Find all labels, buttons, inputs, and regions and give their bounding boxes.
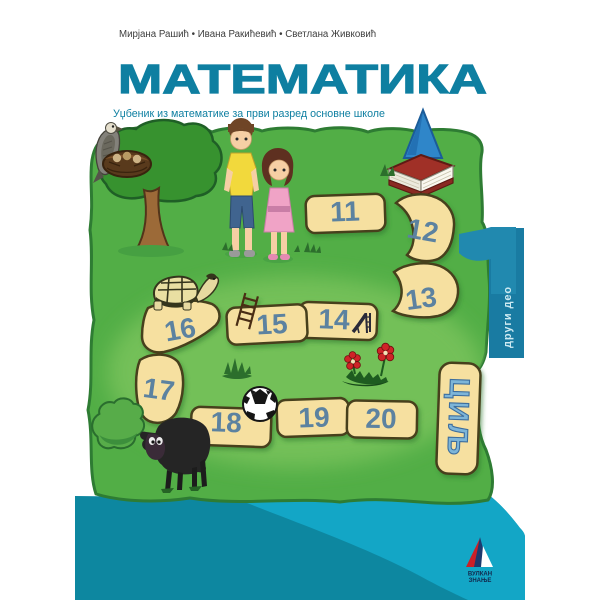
svg-text:МАТЕМАТИКА: МАТЕМАТИКА bbox=[118, 57, 487, 103]
svg-text:18: 18 bbox=[210, 406, 242, 438]
svg-text:ЦИЉ: ЦИЉ bbox=[442, 377, 476, 458]
svg-text:15: 15 bbox=[256, 308, 289, 341]
svg-text:Уџбеник из математике за први: Уџбеник из математике за први разред осн… bbox=[113, 108, 385, 120]
svg-text:12: 12 bbox=[405, 213, 441, 249]
svg-text:17: 17 bbox=[141, 372, 176, 407]
svg-text:ВУЛКАН: ВУЛКАН bbox=[468, 572, 492, 578]
svg-text:14: 14 bbox=[318, 303, 351, 335]
svg-text:Мирјана Рашић • Ивана Ракићеви: Мирјана Рашић • Ивана Ракићевић • Светла… bbox=[119, 29, 376, 40]
svg-text:13: 13 bbox=[403, 281, 438, 316]
svg-text:19: 19 bbox=[298, 401, 330, 433]
svg-text:16: 16 bbox=[162, 312, 198, 348]
svg-text:11: 11 bbox=[330, 195, 361, 227]
svg-text:20: 20 bbox=[365, 403, 397, 435]
svg-text:ЗНАЊЕ: ЗНАЊЕ bbox=[469, 578, 492, 584]
svg-text:други део: други део bbox=[502, 286, 514, 348]
